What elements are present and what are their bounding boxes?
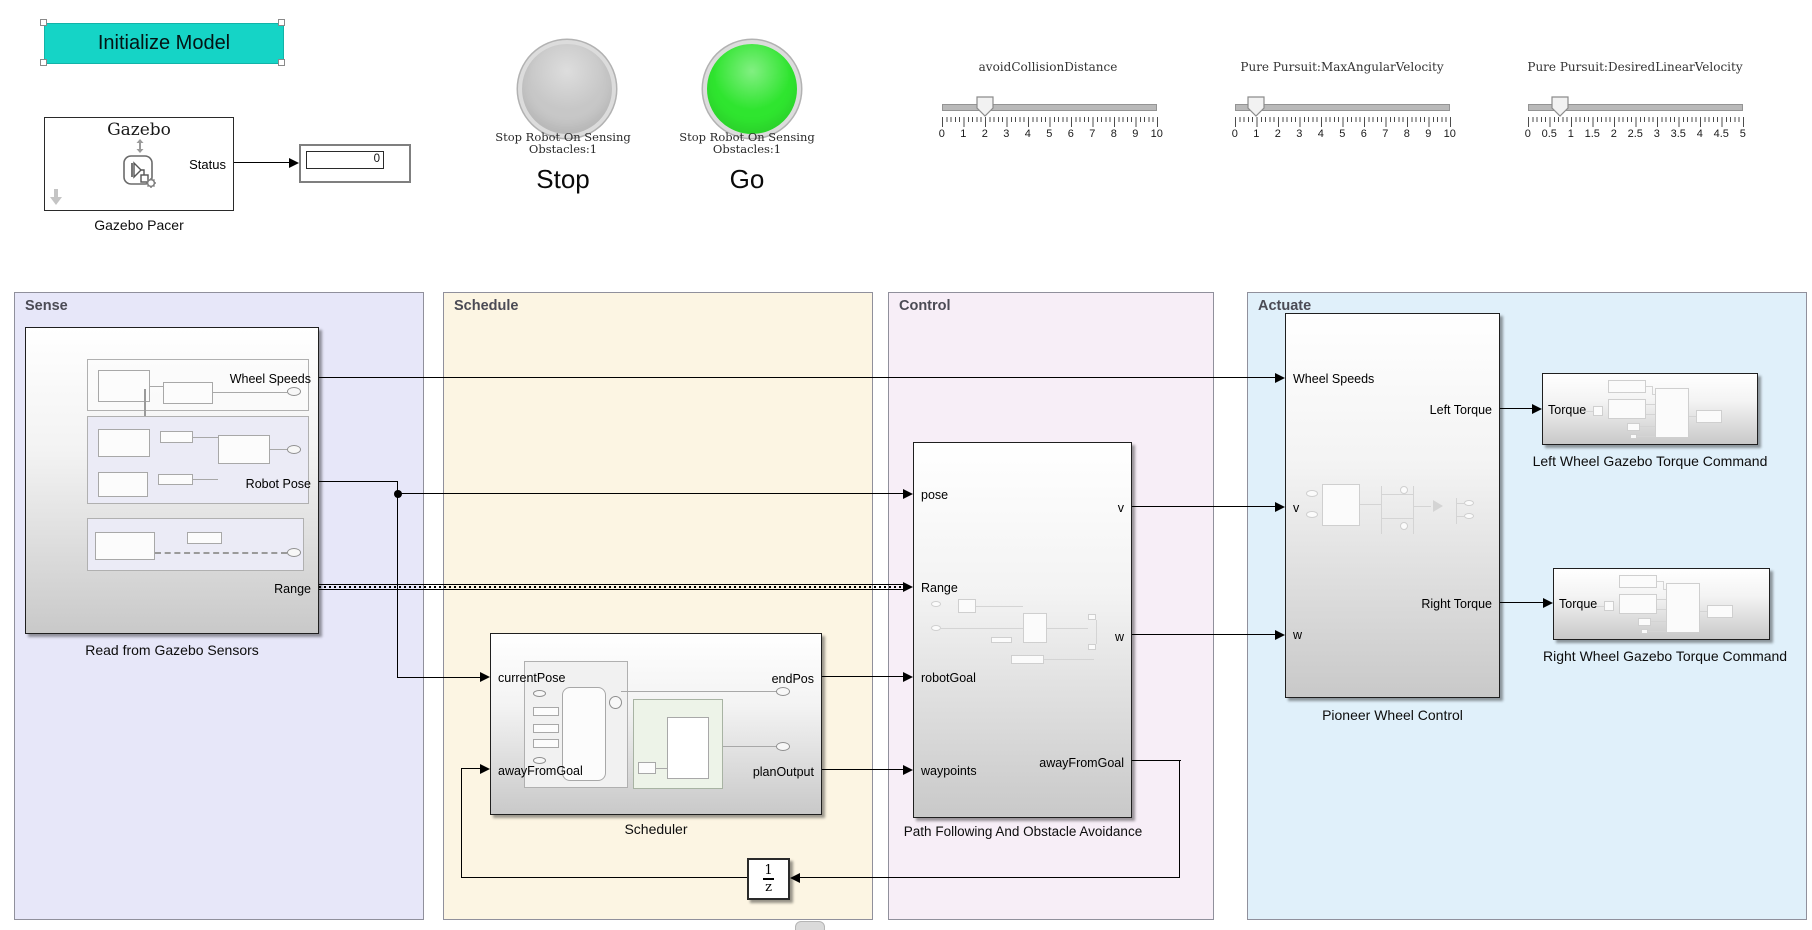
wire-planoutput	[822, 769, 904, 770]
lamp-stop[interactable]	[518, 40, 616, 138]
horizontal-scrollbar-thumb[interactable]	[795, 921, 825, 930]
slider-desiredlinear-tick-labels: 00.511.522.533.544.55	[1517, 128, 1754, 140]
wire-awayfromgoal	[461, 768, 462, 878]
port-wheel-speeds: Wheel Speeds	[230, 371, 311, 387]
simulink-model-canvas: Initialize Model Gazebo Status Gazebo Pa…	[0, 0, 1812, 930]
selection-handle[interactable]	[40, 19, 47, 26]
initialize-model-button[interactable]: Initialize Model	[44, 23, 284, 64]
scheduler-block[interactable]: currentPose awayFromGoal endPos planOutp…	[490, 633, 822, 815]
wire-arrowhead	[289, 158, 299, 168]
wire-awayfromgoal	[800, 877, 1180, 878]
wire-arrowhead	[1543, 598, 1553, 608]
wire-awayfromgoal	[461, 877, 747, 878]
selection-handle[interactable]	[278, 19, 285, 26]
gazebo-pacer-block[interactable]: Gazebo Status	[44, 117, 234, 211]
wire-w	[1132, 634, 1276, 635]
slider-avoidcollision-track[interactable]	[942, 104, 1157, 111]
slider-desiredlinear-ruler	[1528, 117, 1745, 127]
status-display-block[interactable]: 0	[299, 144, 411, 183]
area-control-label: Control	[899, 298, 951, 314]
wire-arrowhead	[903, 765, 913, 775]
wire-arrowhead	[903, 672, 913, 682]
unit-delay-numerator: 1	[764, 864, 772, 877]
slider-maxangular-ruler	[1235, 117, 1452, 127]
port-v-in: v	[1293, 500, 1299, 516]
gazebo-pacer-label: Gazebo Pacer	[44, 217, 234, 233]
selection-handle[interactable]	[40, 59, 47, 66]
port-torque-right: Torque	[1559, 596, 1597, 612]
updown-arrow-icon	[134, 139, 146, 153]
right-wheel-torque-label: Right Wheel Gazebo Torque Command	[1543, 648, 1779, 664]
port-endpos: endPos	[772, 671, 814, 687]
wire-left-torque	[1500, 408, 1533, 409]
selection-handle[interactable]	[278, 59, 285, 66]
area-schedule-label: Schedule	[454, 298, 518, 314]
left-wheel-torque-label: Left Wheel Gazebo Torque Command	[1532, 453, 1768, 469]
port-right-torque: Right Torque	[1421, 596, 1492, 612]
slider-avoidcollision-label: avoidCollisionDistance	[933, 60, 1163, 74]
unit-delay-block[interactable]: 1 z	[747, 858, 790, 900]
port-awayfromgoal-out: awayFromGoal	[1039, 755, 1124, 771]
read-gazebo-sensors-block[interactable]: Wheel Speeds Robot Pose Range	[25, 327, 319, 634]
status-port-label: Status	[189, 157, 226, 173]
port-range-in: Range	[921, 580, 958, 596]
status-display-value: 0	[306, 151, 384, 169]
left-wheel-torque-block[interactable]: Torque	[1542, 373, 1758, 445]
slider-maxangular-thumb[interactable]	[1247, 96, 1265, 117]
slider-avoidcollision-tick-labels: 012345678910	[931, 128, 1168, 140]
read-gazebo-sensors-label: Read from Gazebo Sensors	[25, 642, 319, 658]
wire-awayfromgoal	[461, 768, 481, 769]
wire-awayfromgoal	[1179, 760, 1180, 878]
area-sense-label: Sense	[25, 298, 68, 314]
port-left-torque: Left Torque	[1430, 402, 1492, 418]
wire-arrowhead	[480, 764, 490, 774]
slider-avoidcollision-thumb[interactable]	[976, 96, 994, 117]
pioneer-wheel-control-block[interactable]: Wheel Speeds v w Left Torque Right Torqu…	[1285, 313, 1500, 698]
path-following-label: Path Following And Obstacle Avoidance	[893, 824, 1153, 839]
wire-wheel-speeds	[319, 377, 1276, 378]
pacer-play-gear-icon	[122, 154, 158, 190]
port-awayfromgoal-in: awayFromGoal	[498, 763, 583, 779]
wire-awayfromgoal	[1132, 760, 1181, 761]
unit-delay-denominator: z	[765, 881, 772, 894]
down-arrow-icon	[49, 189, 63, 206]
wire-robot-pose-to-pose	[397, 493, 904, 494]
port-w-in: w	[1293, 627, 1302, 643]
port-planoutput: planOutput	[753, 764, 814, 780]
port-torque-left: Torque	[1548, 402, 1586, 418]
wire-arrowhead	[903, 582, 913, 592]
wire-right-torque	[1500, 602, 1544, 603]
wire-endpos	[822, 676, 904, 677]
right-wheel-torque-block[interactable]: Torque	[1553, 568, 1770, 640]
lamp-go-title: Go	[662, 164, 832, 195]
port-currentpose: currentPose	[498, 670, 565, 686]
wire-arrowhead	[903, 489, 913, 499]
wire-arrowhead	[1275, 502, 1285, 512]
wire-arrowhead	[480, 672, 490, 682]
slider-desiredlinear-thumb[interactable]	[1551, 96, 1569, 117]
lamp-stop-caption: Stop Robot On Sensing Obstacles:1	[478, 131, 648, 155]
wire-range	[319, 584, 904, 590]
wire-arrowhead	[1275, 630, 1285, 640]
port-robot-pose: Robot Pose	[246, 476, 311, 492]
gazebo-title: Gazebo	[45, 120, 233, 140]
wire-robot-pose	[319, 481, 398, 482]
port-wheel-speeds-in: Wheel Speeds	[1293, 371, 1374, 387]
port-pose: pose	[921, 487, 948, 503]
wire-v	[1132, 506, 1276, 507]
wire-status	[234, 162, 290, 163]
area-actuate-label: Actuate	[1258, 298, 1311, 314]
wire-to-currentpose	[397, 677, 481, 678]
port-robotgoal: robotGoal	[921, 670, 976, 686]
slider-avoidcollision-ruler	[942, 117, 1159, 127]
lamp-go-caption: Stop Robot On Sensing Obstacles:1	[662, 131, 832, 155]
wire-branch-dot	[394, 490, 402, 498]
port-w-out: w	[1115, 629, 1124, 645]
scheduler-label: Scheduler	[490, 821, 822, 837]
slider-desiredlinear-label: Pure Pursuit:DesiredLinearVelocity	[1520, 60, 1750, 74]
port-range: Range	[274, 581, 311, 597]
wire-arrowhead	[1532, 404, 1542, 414]
slider-maxangular-track[interactable]	[1235, 104, 1450, 111]
wire-arrowhead	[790, 873, 800, 883]
path-following-block[interactable]: pose Range robotGoal waypoints v w awayF…	[913, 442, 1132, 818]
port-v-out: v	[1118, 500, 1124, 516]
lamp-go[interactable]	[703, 40, 801, 138]
slider-maxangular-tick-labels: 012345678910	[1224, 128, 1461, 140]
wire-arrowhead	[1275, 373, 1285, 383]
port-waypoints: waypoints	[921, 763, 977, 779]
slider-maxangular-label: Pure Pursuit:MaxAngularVelocity	[1227, 60, 1457, 74]
pioneer-wheel-control-label: Pioneer Wheel Control	[1285, 707, 1500, 723]
lamp-stop-title: Stop	[478, 164, 648, 195]
